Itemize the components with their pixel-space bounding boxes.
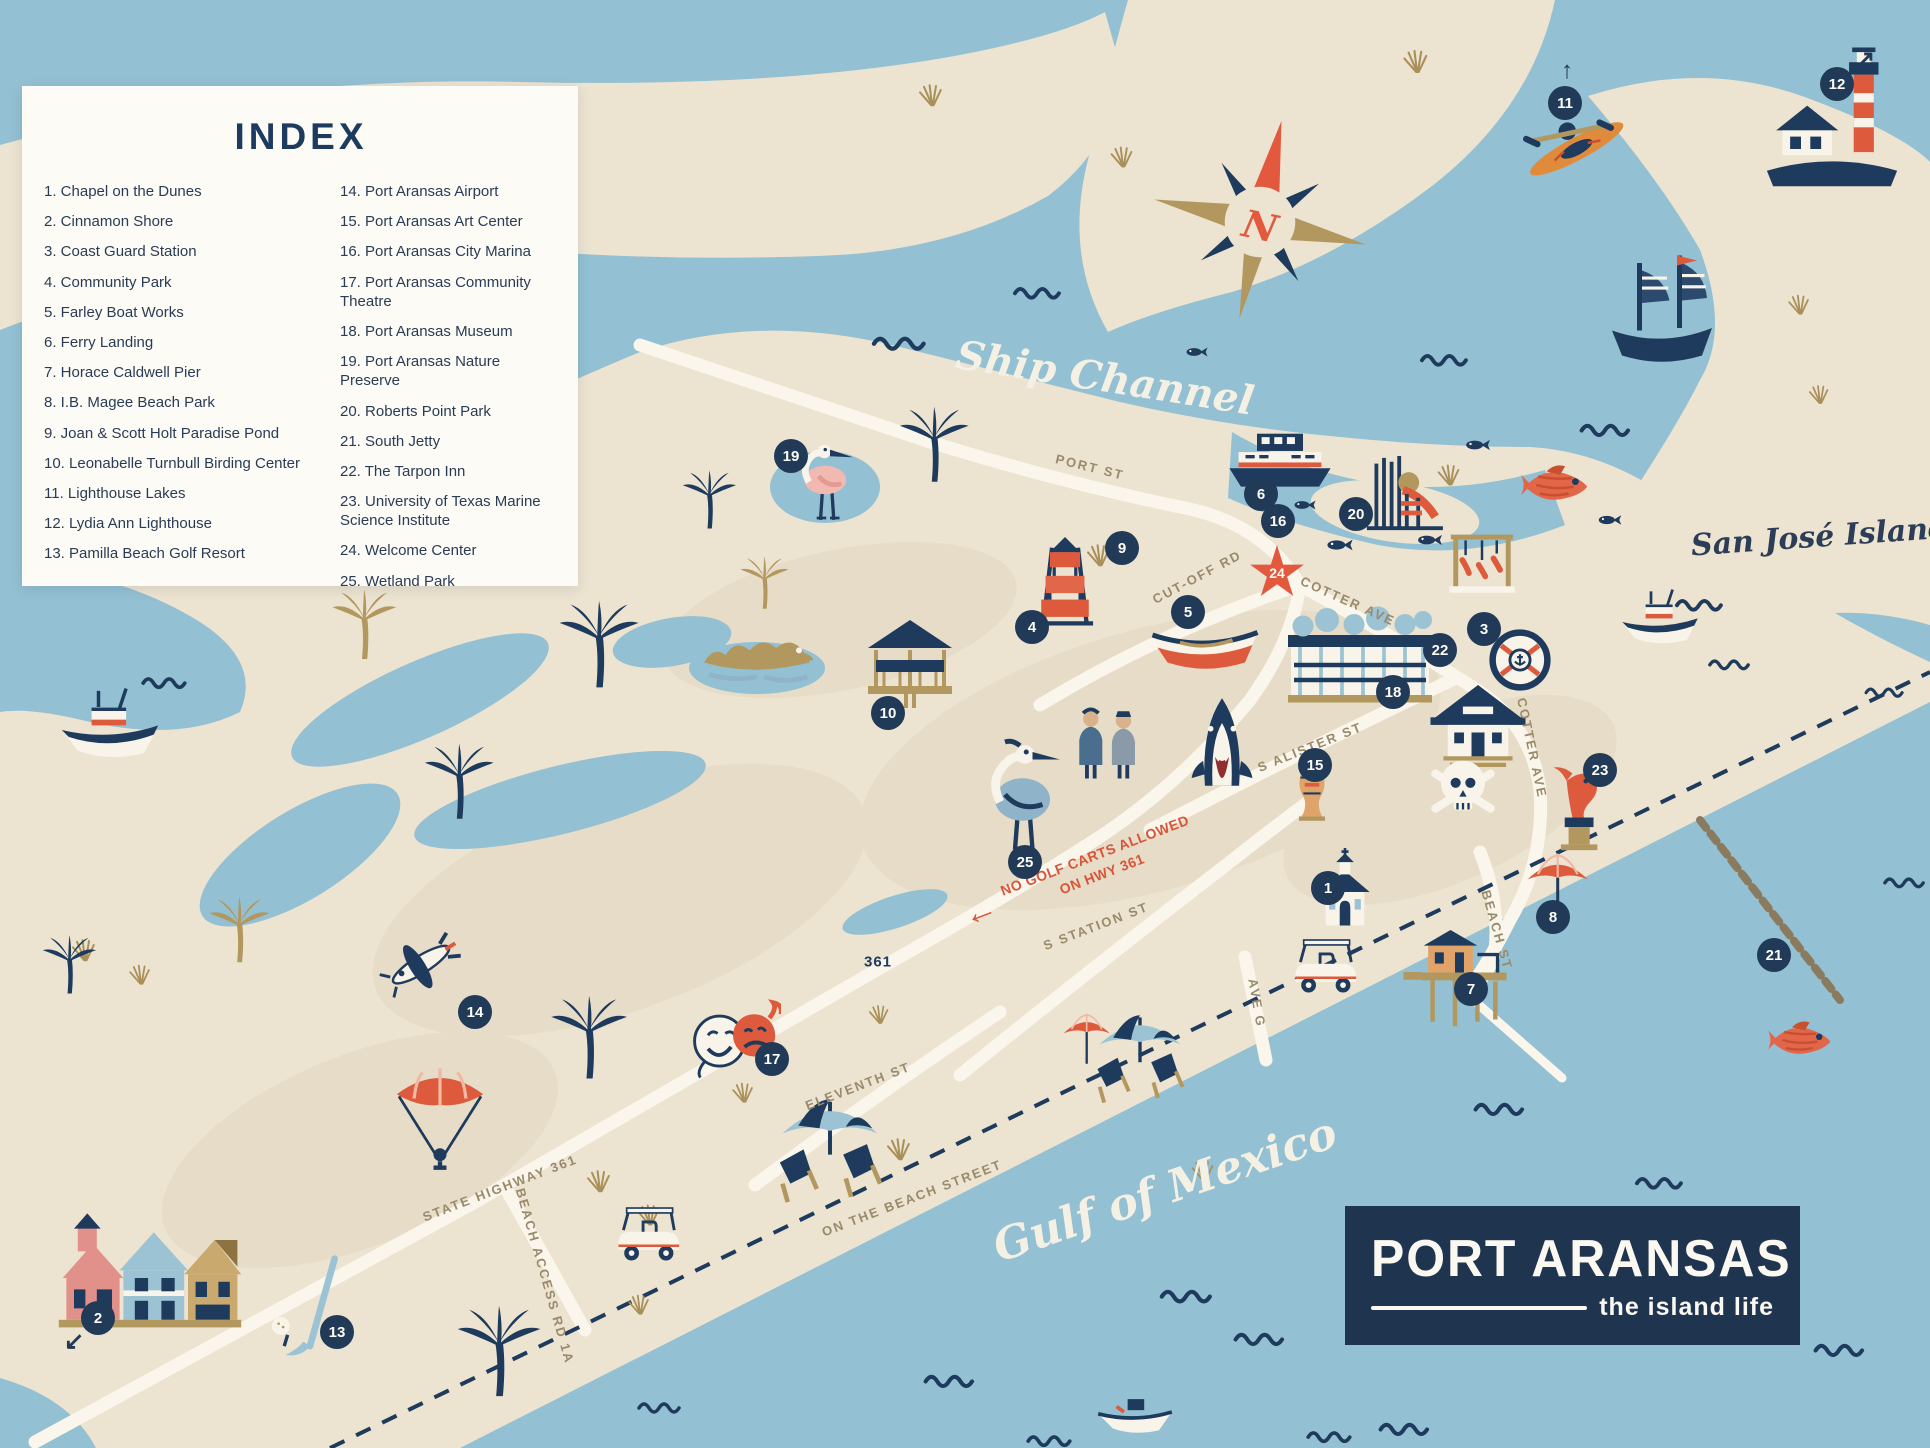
index-item: 25. Wetland Park [340, 572, 558, 591]
index-item: 7. Horace Caldwell Pier [44, 363, 332, 382]
index-item: 9. Joan & Scott Holt Paradise Pond [44, 424, 332, 443]
index-item: 5. Farley Boat Works [44, 303, 332, 322]
port-aransas-map: INDEX 1. Chapel on the Dunes2. Cinnamon … [0, 0, 1930, 1448]
index-item: 23. University of Texas Marine Science I… [340, 492, 558, 530]
map-marker-14[interactable]: 14 [458, 995, 492, 1029]
map-marker-13[interactable]: 13 [320, 1315, 354, 1349]
index-panel: INDEX 1. Chapel on the Dunes2. Cinnamon … [22, 86, 578, 586]
map-marker-1[interactable]: 1 [1311, 871, 1345, 905]
map-marker-16[interactable]: 16 [1261, 504, 1295, 538]
map-marker-21[interactable]: 21 [1757, 938, 1791, 972]
map-marker-22[interactable]: 22 [1423, 633, 1457, 667]
marker-direction-arrow-icon: ↙ [64, 1330, 84, 1354]
logo-title: PORT ARANSAS [1371, 1229, 1758, 1289]
map-marker-2[interactable]: 2↙ [81, 1301, 115, 1335]
index-item: 19. Port Aransas Nature Preserve [340, 352, 558, 390]
index-item: 22. The Tarpon Inn [340, 462, 558, 481]
index-item: 6. Ferry Landing [44, 333, 332, 352]
index-item: 16. Port Aransas City Marina [340, 242, 558, 261]
index-item: 18. Port Aransas Museum [340, 322, 558, 341]
marker-direction-arrow-icon: ↑ [1561, 59, 1573, 83]
cgseal-illustration [1493, 633, 1548, 688]
index-item: 1. Chapel on the Dunes [44, 182, 332, 201]
index-item: 10. Leonabelle Turnbull Birding Center [44, 454, 332, 473]
index-item: 12. Lydia Ann Lighthouse [44, 514, 332, 533]
index-item: 14. Port Aransas Airport [340, 182, 558, 201]
map-marker-10[interactable]: 10 [871, 696, 905, 730]
map-marker-3[interactable]: 3 [1467, 612, 1501, 646]
map-marker-15[interactable]: 15 [1298, 748, 1332, 782]
highway-361-badge: 361 [864, 954, 892, 971]
map-marker-19[interactable]: 19 [774, 439, 808, 473]
map-marker-25[interactable]: 25 [1008, 845, 1042, 879]
map-marker-9[interactable]: 9 [1105, 531, 1139, 565]
index-item: 17. Port Aransas Community Theatre [340, 273, 558, 311]
index-item: 3. Coast Guard Station [44, 242, 332, 261]
map-marker-20[interactable]: 20 [1339, 497, 1373, 531]
index-item: 8. I.B. Magee Beach Park [44, 393, 332, 412]
map-marker-8[interactable]: 8 [1536, 900, 1570, 934]
index-item: 4. Community Park [44, 273, 332, 292]
index-item: 13. Pamilla Beach Golf Resort [44, 544, 332, 563]
index-item: 21. South Jetty [340, 432, 558, 451]
marker-direction-arrow-icon: ↗ [1855, 48, 1875, 72]
index-item: 24. Welcome Center [340, 541, 558, 560]
logo-tagline: the island life [1599, 1293, 1774, 1322]
inn-illustration [1288, 607, 1432, 703]
map-marker-4[interactable]: 4 [1015, 610, 1049, 644]
index-column-2: 14. Port Aransas Airport15. Port Aransas… [340, 182, 558, 602]
map-marker-23[interactable]: 23 [1583, 753, 1617, 787]
map-marker-17[interactable]: 17 [755, 1042, 789, 1076]
map-marker-18[interactable]: 18 [1376, 675, 1410, 709]
logo-divider-line [1371, 1306, 1587, 1310]
index-title: INDEX [44, 116, 558, 158]
index-item: 2. Cinnamon Shore [44, 212, 332, 231]
map-marker-7[interactable]: 7 [1454, 972, 1488, 1006]
index-item: 20. Roberts Point Park [340, 402, 558, 421]
logo-box: PORT ARANSAS the island life [1345, 1206, 1800, 1345]
map-marker-12[interactable]: 12↗ [1820, 67, 1854, 101]
map-marker-5[interactable]: 5 [1171, 595, 1205, 629]
index-item: 15. Port Aransas Art Center [340, 212, 558, 231]
map-marker-11[interactable]: 11↑ [1548, 86, 1582, 120]
index-item: 11. Lighthouse Lakes [44, 484, 332, 503]
index-column-1: 1. Chapel on the Dunes2. Cinnamon Shore3… [44, 182, 332, 602]
